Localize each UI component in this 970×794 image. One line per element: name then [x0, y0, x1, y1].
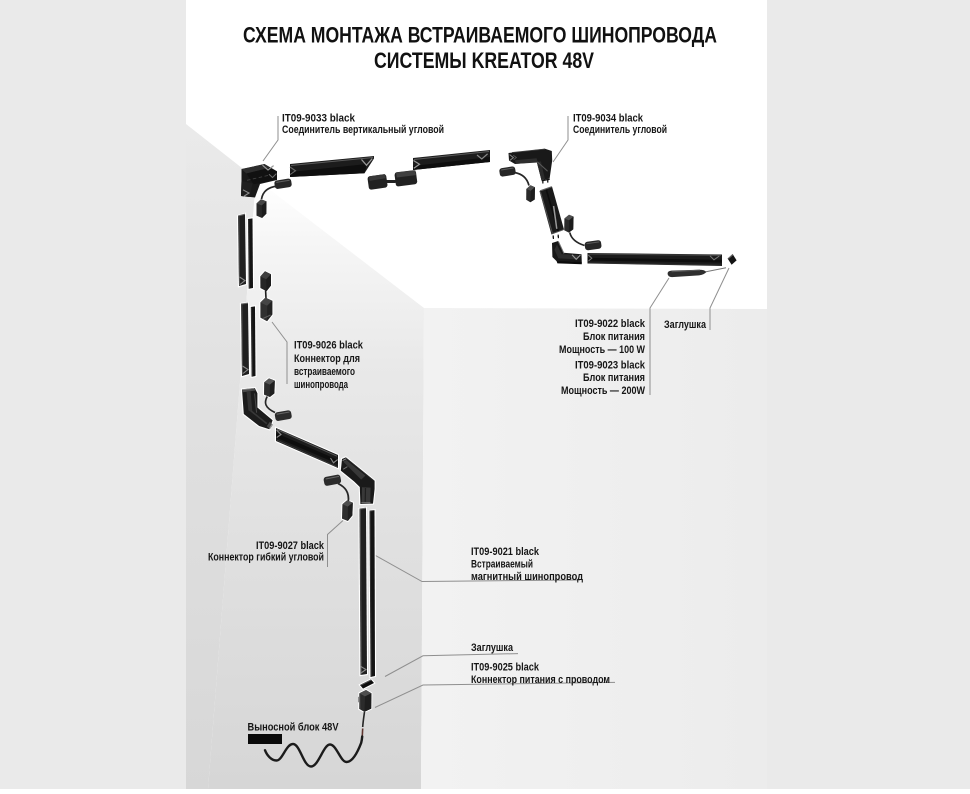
svg-text:Коннектор гибкий угловой: Коннектор гибкий угловой — [208, 552, 324, 564]
svg-text:Блок питания: Блок питания — [583, 331, 645, 343]
svg-text:СИСТЕМЫ KREATOR 48V: СИСТЕМЫ KREATOR 48V — [374, 48, 594, 73]
svg-text:IT09-9033 black: IT09-9033 black — [282, 113, 356, 125]
svg-text:Встраиваемый: Встраиваемый — [471, 559, 533, 571]
svg-text:шинопровода: шинопровода — [294, 379, 349, 391]
svg-text:IT09-9021 black: IT09-9021 black — [471, 546, 540, 558]
svg-text:IT09-9023 black: IT09-9023 black — [575, 360, 646, 372]
svg-text:Коннектор для: Коннектор для — [294, 353, 360, 365]
svg-text:Соединитель угловой: Соединитель угловой — [573, 124, 667, 136]
svg-text:IT09-9034 black: IT09-9034 black — [573, 113, 644, 125]
svg-text:Заглушка: Заглушка — [664, 319, 707, 331]
svg-text:Коннектор питания с проводом: Коннектор питания с проводом — [471, 674, 610, 686]
svg-text:Заглушка: Заглушка — [471, 642, 514, 654]
svg-text:Выносной блок 48V: Выносной блок 48V — [248, 722, 340, 734]
svg-text:IT09-9025 black: IT09-9025 black — [471, 662, 540, 674]
svg-text:Блок питания: Блок питания — [583, 372, 645, 384]
svg-text:встраиваемого: встраиваемого — [294, 366, 355, 378]
svg-text:СХЕМА МОНТАЖА ВСТРАИВАЕМОГО ШИ: СХЕМА МОНТАЖА ВСТРАИВАЕМОГО ШИНОПРОВОДА — [243, 23, 717, 48]
svg-text:IT09-9022 black: IT09-9022 black — [575, 318, 646, 330]
svg-text:IT09-9026 black: IT09-9026 black — [294, 340, 364, 352]
svg-text:магнитный шинопровод: магнитный шинопровод — [471, 571, 583, 583]
svg-text:Мощность — 200W: Мощность — 200W — [561, 385, 646, 397]
svg-text:Мощность — 100 W: Мощность — 100 W — [559, 344, 646, 356]
svg-text:IT09-9027 black: IT09-9027 black — [256, 540, 325, 552]
svg-text:Соединитель вертикальный углов: Соединитель вертикальный угловой — [282, 124, 444, 136]
